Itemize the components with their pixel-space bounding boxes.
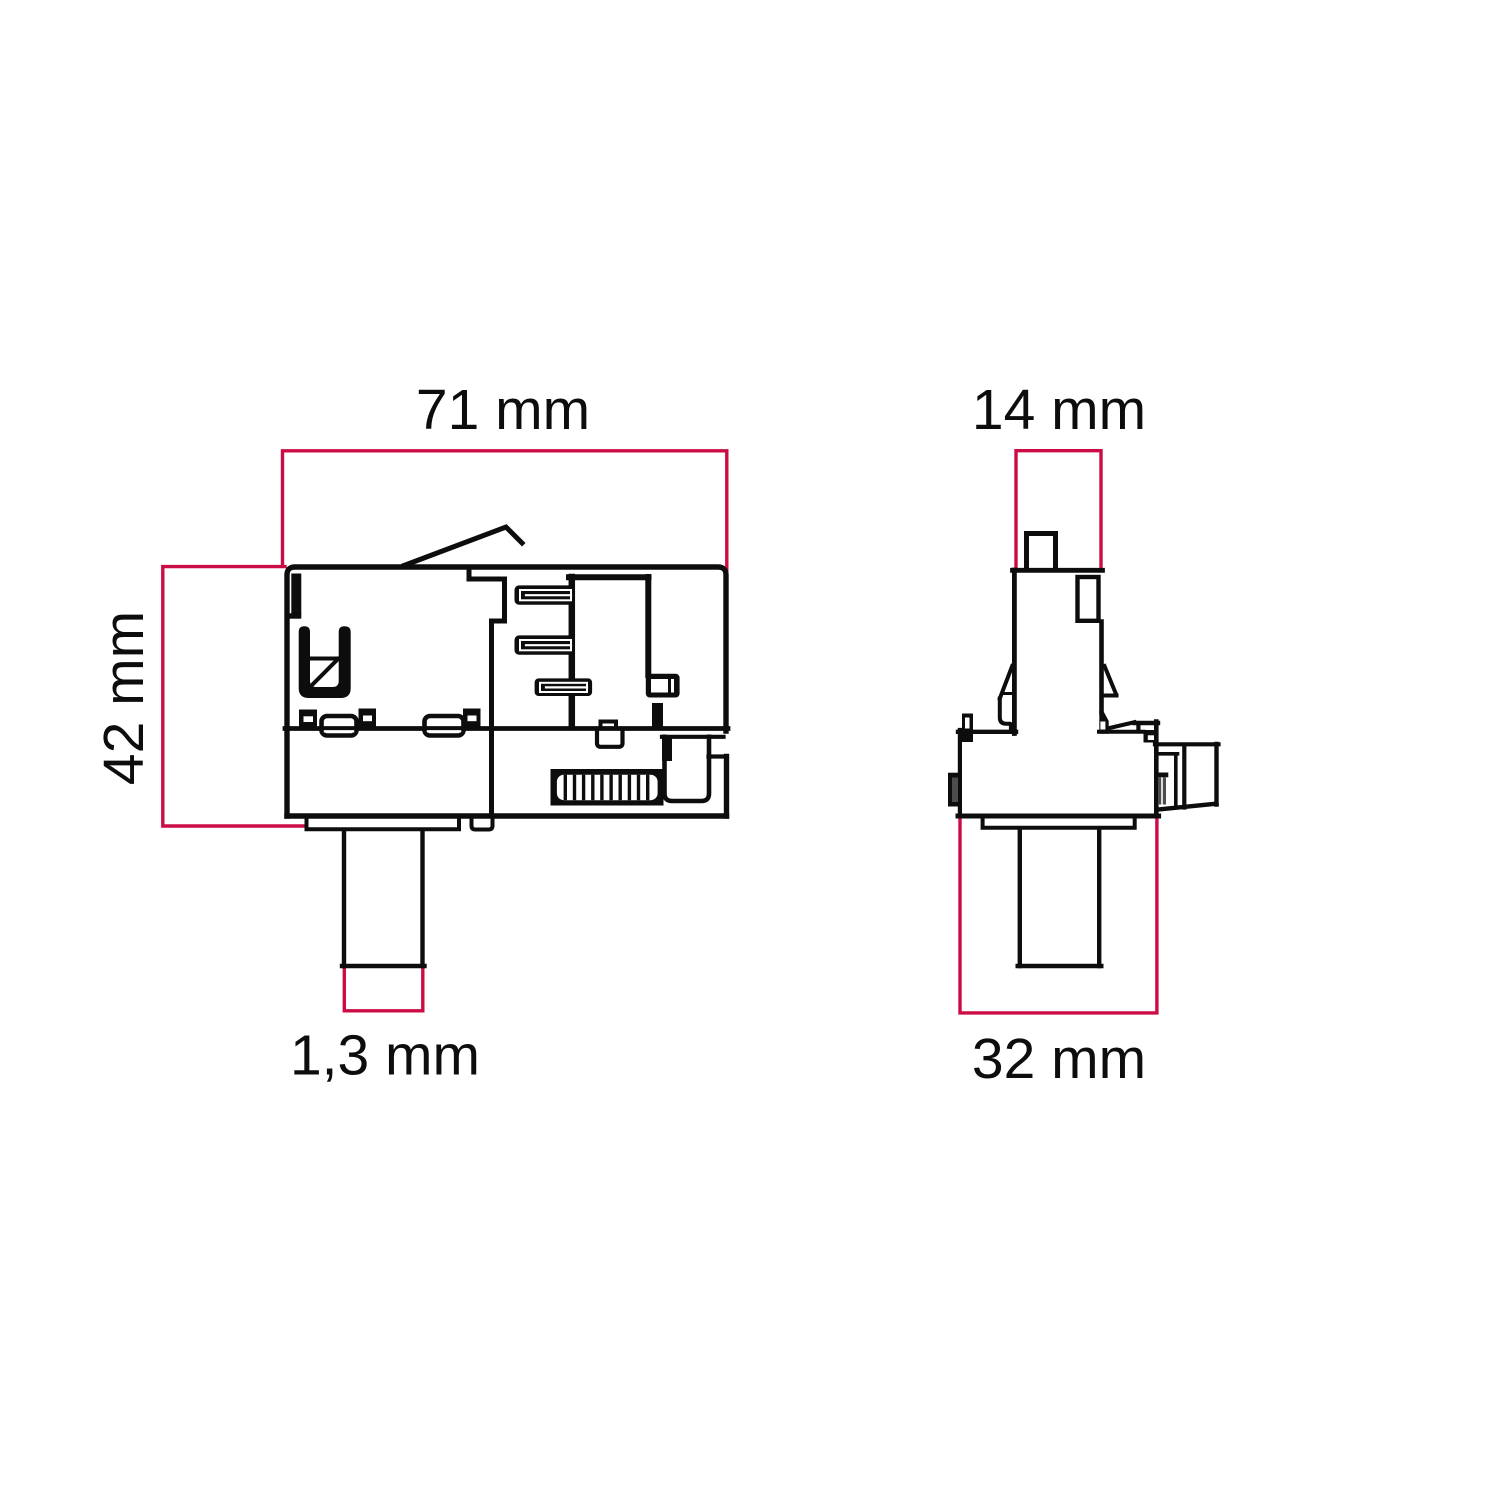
- svg-text:71 mm: 71 mm: [416, 378, 590, 442]
- svg-text:14 mm: 14 mm: [972, 378, 1146, 442]
- svg-text:32 mm: 32 mm: [972, 1027, 1146, 1091]
- svg-text:42 mm: 42 mm: [92, 611, 156, 785]
- svg-text:1,3 mm: 1,3 mm: [290, 1024, 480, 1088]
